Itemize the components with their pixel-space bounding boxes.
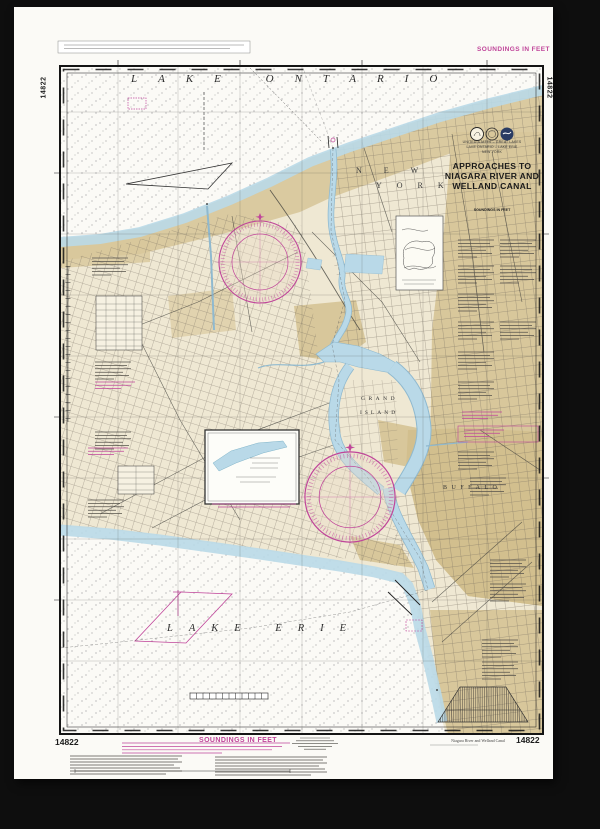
title-line2: NIAGARA RIVER AND (440, 171, 544, 181)
new-york-label-line1: NEW (356, 166, 440, 175)
chart-number-right-edge: 14822 (546, 66, 553, 110)
commerce-seal-icon (471, 128, 484, 141)
title-line3: WELLAND CANAL (440, 181, 544, 191)
bottom-right-caption: Niagara River and Welland Canal (418, 738, 538, 743)
lake-erie-label: LAKE ERIE (167, 623, 362, 634)
soundings-note-top: SOUNDINGS IN FEET (477, 46, 550, 53)
inset-diagram (396, 216, 443, 290)
grand-island-label-line2: ISLAND (360, 410, 398, 416)
noaa-logo-icon (501, 128, 514, 141)
region-line3: NEW YORK (440, 150, 544, 155)
title-block-soundings-note: SOUNDINGS IN FEET (440, 208, 544, 212)
chart-graphics (0, 0, 600, 829)
lake-ontario-label: LAKE ONTARIO (131, 73, 458, 85)
inset-map (205, 430, 299, 507)
chart-title: APPROACHES TO NIAGARA RIVER AND WELLAND … (440, 161, 544, 192)
chart-number-left-edge: 14822 (41, 66, 48, 110)
soundings-note-bottom: SOUNDINGS IN FEET (199, 737, 277, 744)
chart-number-bottom-left: 14822 (55, 737, 79, 747)
buffalo-label: BUFFALO (443, 485, 501, 491)
title-block-region: UNITED STATES – GREAT LAKES LAKE ONTARIO… (440, 140, 544, 155)
grand-island-label-line1: GRAND (361, 396, 398, 402)
title-line1: APPROACHES TO (440, 161, 544, 171)
framed-nautical-chart: LAKE ONTARIO LAKE ERIE NEW YORK GRAND IS… (0, 0, 600, 829)
